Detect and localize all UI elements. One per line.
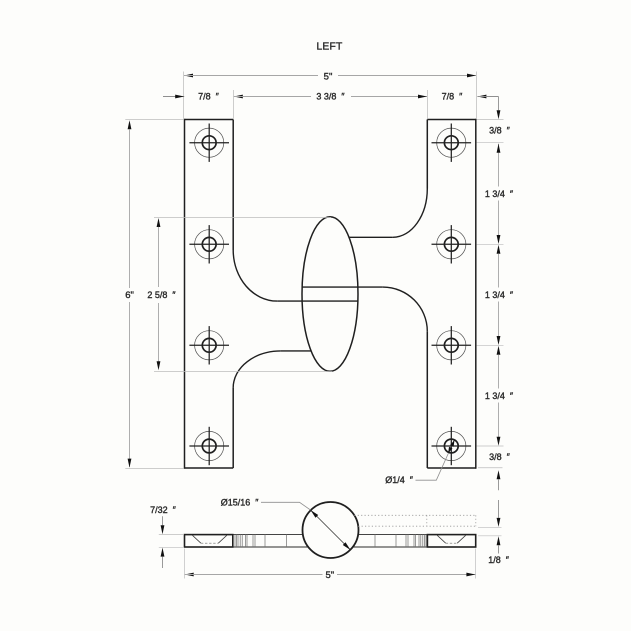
svg-text:1/8 ″: 1/8 ″: [488, 555, 510, 565]
svg-text:2 5/8 ″: 2 5/8 ″: [147, 290, 176, 300]
svg-text:1 3/4 ″: 1 3/4 ″: [485, 189, 514, 199]
svg-text:5": 5": [325, 570, 334, 581]
svg-text:3/8 ″: 3/8 ″: [489, 452, 511, 462]
svg-text:3 3/8 ″: 3 3/8 ″: [316, 92, 345, 102]
svg-text:6": 6": [125, 290, 134, 301]
svg-text:7/8 ″: 7/8 ″: [442, 92, 464, 102]
svg-text:5": 5": [324, 71, 333, 82]
svg-text:LEFT: LEFT: [317, 42, 343, 53]
svg-text:1 3/4 ″: 1 3/4 ″: [485, 391, 514, 401]
svg-text:7/32 ″: 7/32 ″: [150, 505, 177, 515]
svg-text:7/8 ″: 7/8 ″: [198, 92, 220, 102]
svg-text:Ø15/16 ″: Ø15/16 ″: [221, 498, 260, 508]
svg-text:1 3/4 ″: 1 3/4 ″: [485, 290, 514, 300]
svg-text:3/8 ″: 3/8 ″: [489, 126, 511, 136]
svg-text:Ø1/4 ″: Ø1/4 ″: [385, 475, 414, 485]
